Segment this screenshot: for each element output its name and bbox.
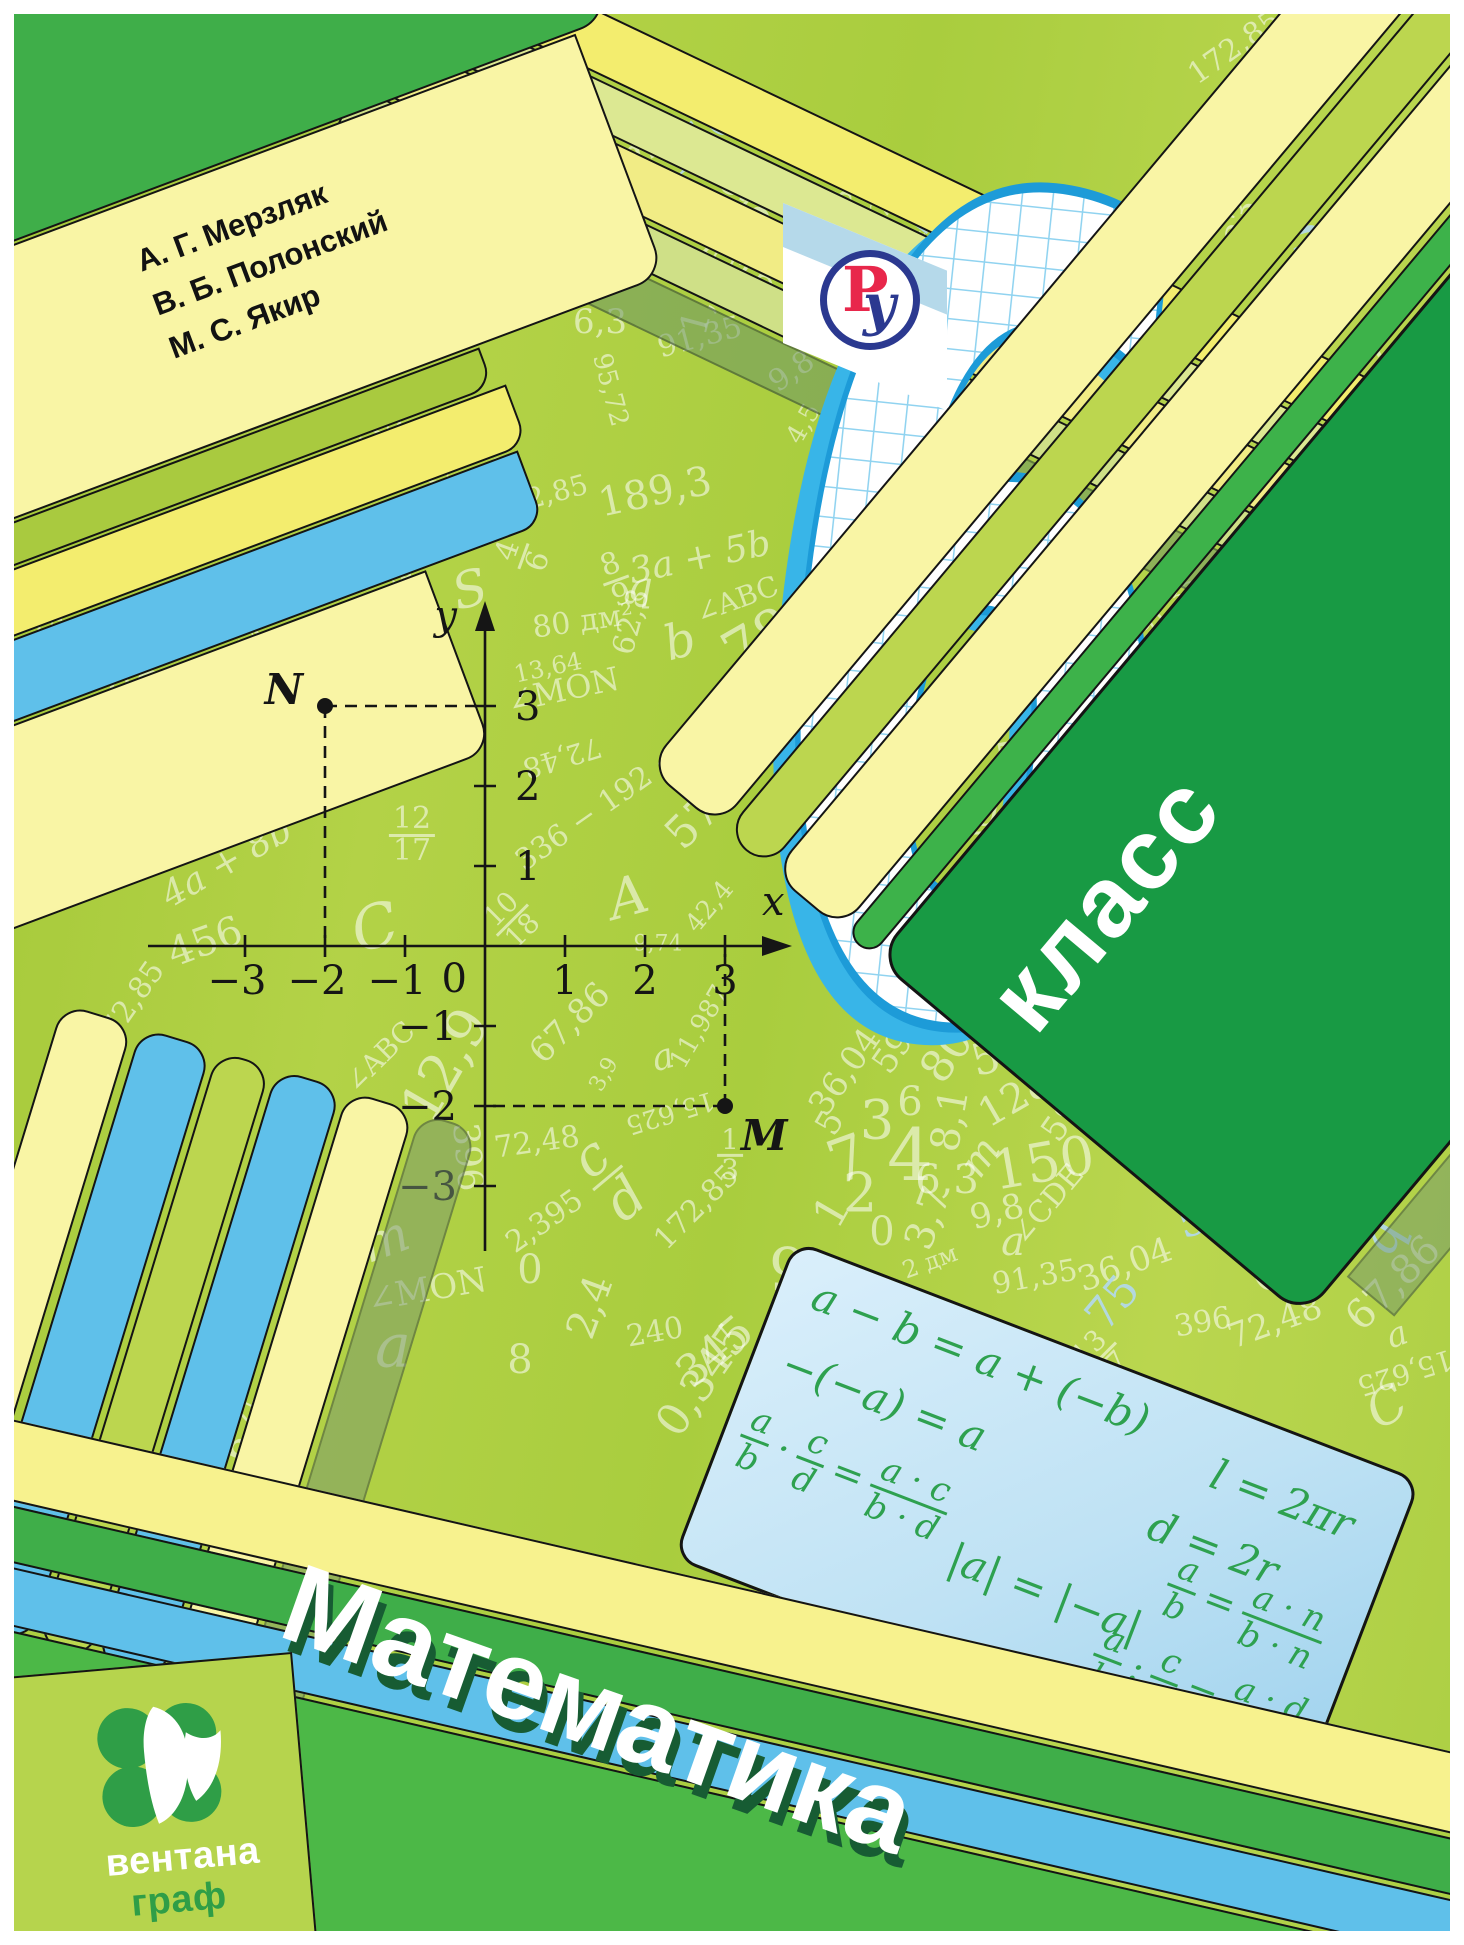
page-frame <box>1450 0 1464 1945</box>
publisher-panel: вентана граф <box>0 1652 319 1945</box>
book-cover: 1503961005451281,8m5915,625ac583836,0411… <box>0 0 1464 1945</box>
page-frame <box>0 0 1464 14</box>
page-frame <box>0 0 14 1945</box>
svg-text:x: x <box>762 879 785 925</box>
point-label-N: N <box>263 665 305 714</box>
svg-text:3: 3 <box>515 684 540 730</box>
point-label-M: M <box>739 1111 789 1160</box>
russian-textbook-logo: Р у <box>820 250 920 350</box>
ventana-graf-logo-icon <box>89 1695 230 1836</box>
svg-text:2: 2 <box>515 764 540 810</box>
svg-text:y: y <box>432 593 458 639</box>
scatter-item: 0 <box>869 1213 894 1251</box>
publisher-name-line2: граф <box>130 1875 229 1926</box>
logo-letter-u: у <box>863 277 897 333</box>
page-frame <box>0 1931 1464 1945</box>
scatter-item: a <box>1001 1223 1025 1261</box>
grade-word: класс <box>966 752 1245 1053</box>
